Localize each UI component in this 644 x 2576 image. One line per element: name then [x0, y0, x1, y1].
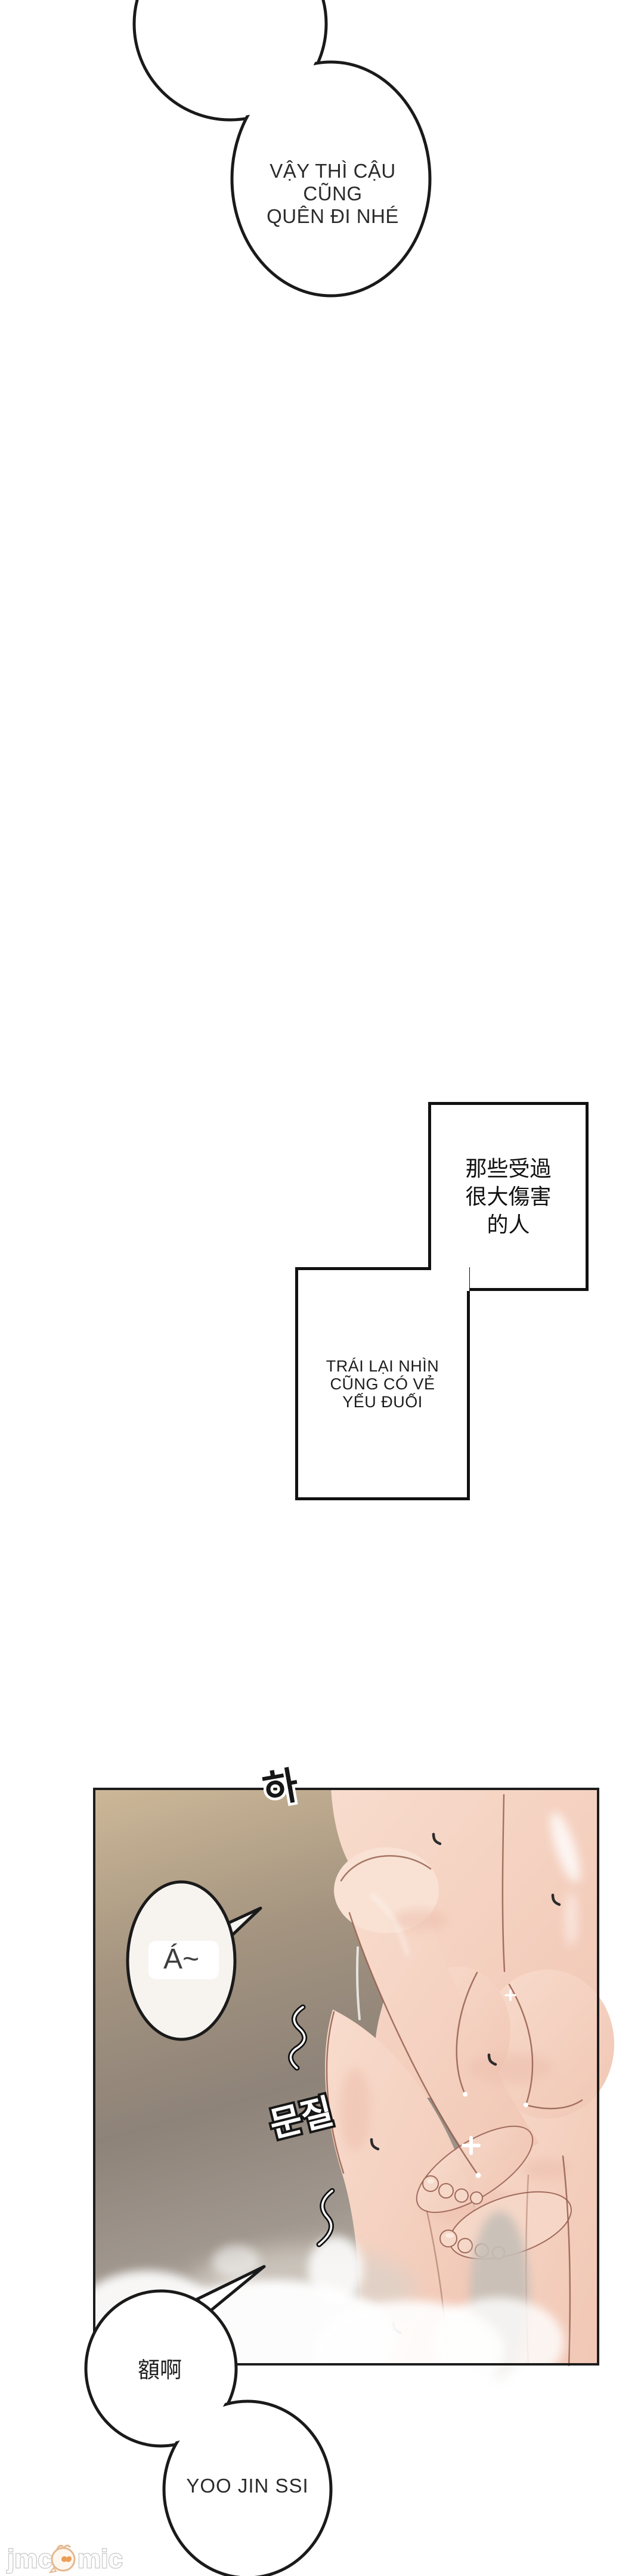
vn-line: YẾU ĐUỐI: [342, 1393, 423, 1411]
cn-line: 很大傷害: [465, 1182, 551, 1210]
bird-mascot-icon: [50, 2546, 75, 2572]
top-bubble-text: VẬY THÌ CẬU CŨNG QUÊN ĐI NHÉ: [237, 160, 428, 228]
vn-line: TRÁI LẠI NHÌN: [326, 1357, 439, 1375]
sfx-rub: 문질: [250, 2075, 352, 2159]
bottom-speech-bubbles: [80, 2257, 349, 2576]
sfx-rub-text: 문질: [266, 2092, 337, 2145]
narration-box-cn: 那些受過 很大傷害 的人: [428, 1102, 589, 1291]
scream-bubble-text: Á~: [128, 1943, 235, 1976]
cn-line: 的人: [487, 1210, 530, 1239]
sfx-breath-text: 하: [259, 1763, 302, 1812]
box-border-union-patch: [431, 1267, 469, 1291]
watermark-suffix: mic: [78, 2544, 123, 2574]
vn-line: CŨNG CÓ VẺ: [330, 1375, 435, 1393]
top-bubble-line: QUÊN ĐI NHÉ: [237, 205, 428, 228]
narration-box-vn: TRÁI LẠI NHÌN CŨNG CÓ VẺ YẾU ĐUỐI: [295, 1267, 470, 1500]
moan-bubble-text: 額啊: [118, 2352, 202, 2384]
comic-page: VẬY THÌ CẬU CŨNG QUÊN ĐI NHÉ 那些受過 很大傷害 的…: [0, 0, 644, 2576]
name-bubble-text: YOO JIN SSI: [176, 2475, 319, 2497]
site-watermark: jmc mic: [4, 2541, 147, 2575]
steam-squiggle-icon: [312, 2190, 354, 2249]
cn-line: 那些受過: [465, 1154, 551, 1182]
top-bubble-line: VẬY THÌ CẬU CŨNG: [237, 160, 428, 205]
steam-squiggle-icon: [285, 2005, 327, 2073]
watermark-prefix: jmc: [7, 2544, 52, 2574]
sfx-breath: 하: [236, 1750, 325, 1819]
top-speech-bubble: [101, 0, 447, 310]
